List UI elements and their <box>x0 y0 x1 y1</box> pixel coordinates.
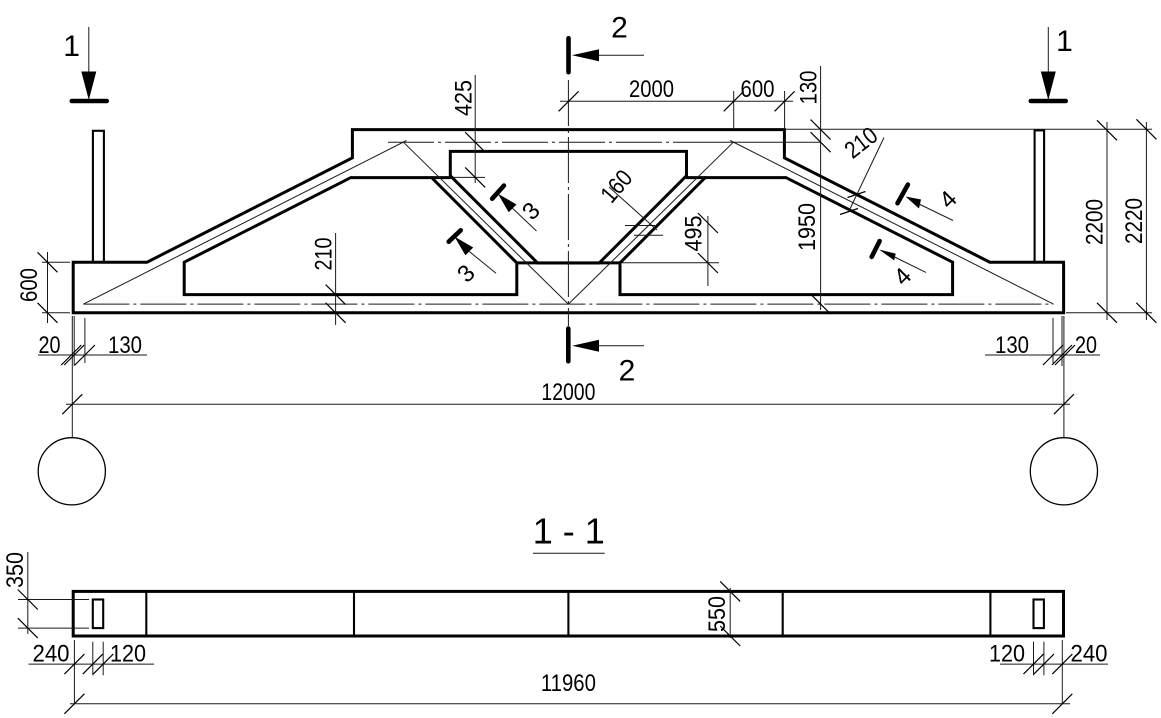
svg-text:12000: 12000 <box>541 379 595 406</box>
svg-text:130: 130 <box>795 71 822 105</box>
svg-text:210: 210 <box>311 238 338 271</box>
svg-text:600: 600 <box>741 76 775 103</box>
svg-text:2: 2 <box>619 354 636 387</box>
svg-text:20: 20 <box>39 332 61 359</box>
svg-text:1950: 1950 <box>794 203 821 251</box>
svg-text:1: 1 <box>63 30 80 63</box>
svg-text:130: 130 <box>995 332 1029 359</box>
svg-text:130: 130 <box>108 332 142 359</box>
svg-text:120: 120 <box>989 641 1025 668</box>
svg-text:600: 600 <box>16 268 43 302</box>
svg-text:1 - 1: 1 - 1 <box>533 511 605 552</box>
svg-text:2000: 2000 <box>629 76 674 103</box>
svg-text:120: 120 <box>110 641 146 668</box>
svg-text:2200: 2200 <box>1081 199 1108 245</box>
svg-text:495: 495 <box>680 216 707 252</box>
svg-text:240: 240 <box>1071 641 1108 668</box>
svg-text:2220: 2220 <box>1121 198 1148 244</box>
svg-text:1: 1 <box>1056 25 1073 58</box>
svg-text:550: 550 <box>704 596 731 632</box>
svg-text:350: 350 <box>2 552 29 588</box>
svg-text:425: 425 <box>451 80 478 116</box>
svg-text:2: 2 <box>611 12 628 45</box>
svg-text:20: 20 <box>1075 332 1097 359</box>
svg-text:11960: 11960 <box>541 670 596 697</box>
svg-text:240: 240 <box>33 641 70 668</box>
